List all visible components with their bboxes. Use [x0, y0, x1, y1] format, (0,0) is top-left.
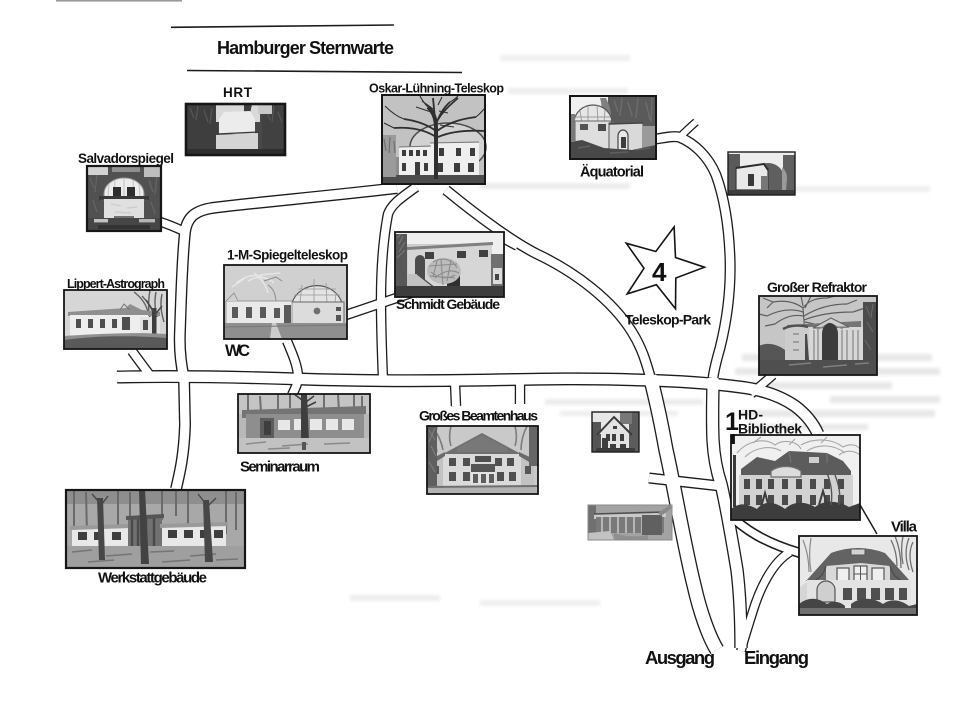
svg-text:Lippert-Astrograph: Lippert-Astrograph — [67, 277, 165, 291]
svg-text:HRT: HRT — [223, 85, 253, 100]
svg-text:WC: WC — [225, 342, 250, 360]
svg-text:Hamburger Sternwarte: Hamburger Sternwarte — [217, 38, 394, 58]
svg-text:Werkstattgebäude: Werkstattgebäude — [98, 570, 207, 587]
svg-text:Salvadorspiegel: Salvadorspiegel — [78, 151, 174, 166]
svg-text:Großes Beamtenhaus: Großes Beamtenhaus — [419, 408, 538, 424]
svg-text:Bibliothek: Bibliothek — [738, 421, 802, 437]
svg-text:Schmidt Gebäude: Schmidt Gebäude — [396, 296, 500, 312]
svg-text:Äquatorial: Äquatorial — [580, 164, 644, 181]
svg-text:Seminarraum: Seminarraum — [240, 459, 320, 476]
svg-text:Teleskop-Park: Teleskop-Park — [625, 312, 711, 328]
svg-text:4: 4 — [652, 257, 667, 287]
svg-text:1-M-Spiegelteleskop: 1-M-Spiegelteleskop — [227, 248, 348, 263]
svg-text:Villa: Villa — [891, 519, 918, 536]
svg-text:Ausgang: Ausgang — [645, 647, 715, 668]
svg-text:Eingang: Eingang — [744, 647, 809, 668]
svg-text:Großer Refraktor: Großer Refraktor — [767, 279, 868, 295]
svg-text:1: 1 — [725, 408, 739, 436]
svg-text:Oskar-Lühning-Teleskop: Oskar-Lühning-Teleskop — [369, 82, 504, 96]
